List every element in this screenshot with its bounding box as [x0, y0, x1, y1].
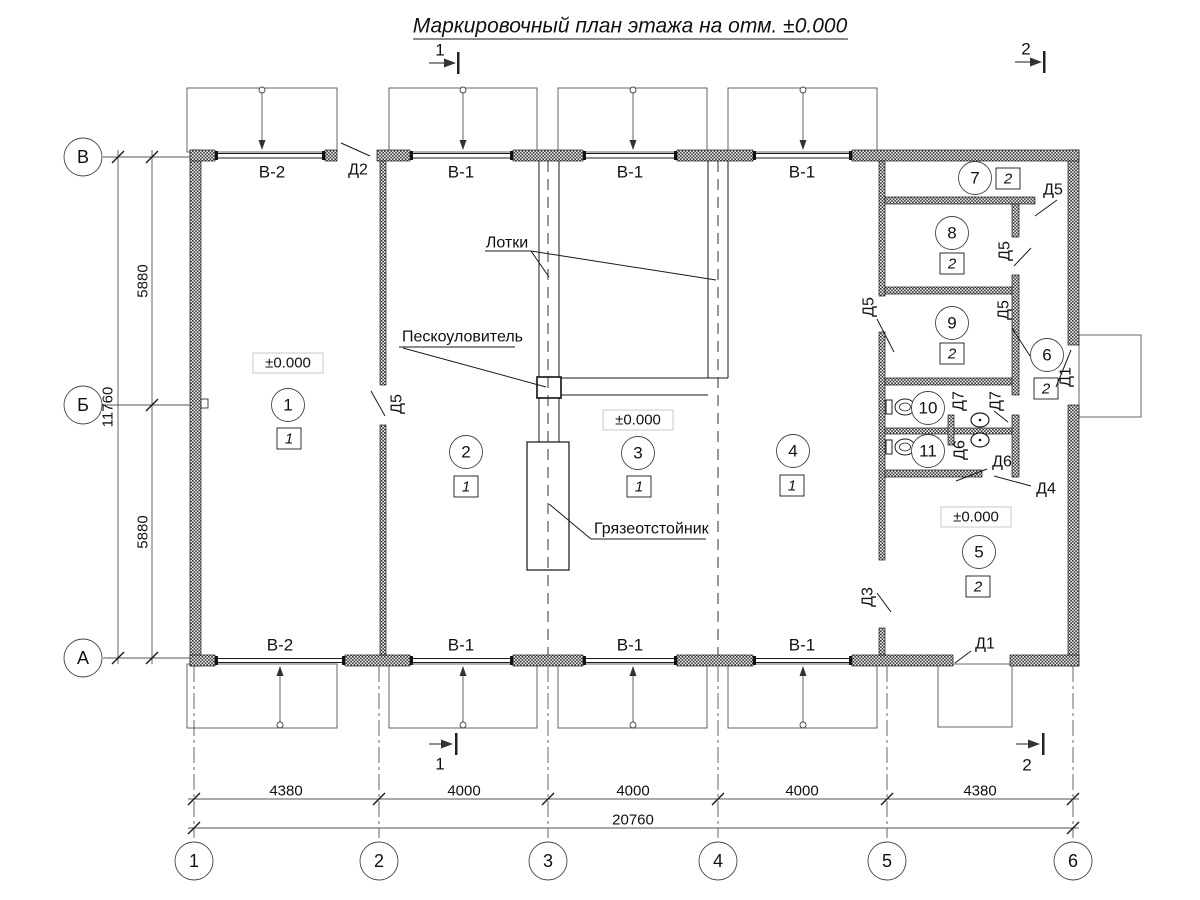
wall-room8-room9 [885, 287, 1012, 294]
elevation-room5: ±0.000 [953, 509, 999, 526]
door-label-d2: Д2 [348, 162, 368, 179]
pilaster-left [201, 399, 208, 408]
windows: В-2 В-1 В-1 В-1 В-2 В-1 В-1 В-1 [215, 151, 852, 665]
section-mark-2-top: 2 [1015, 40, 1046, 74]
page-title: Маркировочный план этажа на отм. ±0.000 [413, 15, 848, 38]
door-label-d6-right: Д6 [992, 454, 1012, 471]
section-label: 2 [1021, 40, 1030, 59]
wall-corridor-2 [1012, 275, 1019, 395]
toilet-room10 [886, 399, 915, 415]
slope-arrows-top [259, 87, 807, 150]
section-mark-2-bottom: 2 [1016, 733, 1045, 775]
section-label: 1 [435, 755, 444, 774]
room-mark-7: 7 2 [959, 162, 1021, 195]
room-category: 2 [947, 256, 957, 273]
porch-bottom-right [938, 664, 1012, 727]
window-label: В-1 [617, 163, 643, 182]
floor-plan-drawing: Маркировочный план этажа на отм. ±0.000 … [0, 0, 1200, 900]
room-mark-4: 4 1 [777, 435, 810, 497]
dim-20760: 20760 [612, 812, 654, 829]
dim-4000-1: 4000 [447, 783, 480, 800]
window-label: В-2 [267, 636, 293, 655]
wall-hall-service-1 [879, 161, 885, 296]
wall-room1-room2-upper [380, 161, 386, 385]
wall-corridor-3 [1012, 415, 1019, 477]
room-mark-9: 9 2 [936, 307, 969, 365]
room-mark-1: 1 1 [272, 389, 305, 450]
window-label: В-1 [617, 636, 643, 655]
trays-label: Лотки [486, 235, 528, 252]
room-mark-2: 2 1 [450, 436, 483, 498]
room-number: 1 [283, 396, 292, 415]
door-label-d6-left: Д6 [952, 440, 969, 460]
section-label: 2 [1022, 756, 1031, 775]
room-category: 2 [973, 579, 983, 596]
wall-left [190, 150, 201, 666]
axis-label: 6 [1068, 851, 1078, 871]
dim-5880-bottom: 5880 [135, 515, 152, 548]
window-label: В-1 [789, 636, 815, 655]
room-number: 7 [970, 169, 979, 188]
callout-sand-trap: Пескоуловитель [399, 329, 546, 388]
dim-4380-2: 4380 [963, 783, 996, 800]
drawing-title: Маркировочный план этажа на отм. ±0.000 [413, 15, 848, 40]
wall-right-lower [1068, 405, 1079, 666]
bottom-dimensions: 4380 4000 4000 4000 4380 20760 1 2 3 4 5… [175, 666, 1092, 880]
door-label-d3: Д3 [860, 587, 877, 607]
floor-plan-sheet: Маркировочный план этажа на отм. ±0.000 … [0, 0, 1200, 900]
door-label-d1-bottom: Д1 [975, 636, 995, 653]
washbasin-upper [971, 413, 989, 427]
sand-trap-box [537, 377, 561, 398]
room-mark-8: 8 2 [936, 217, 969, 275]
door-label-d5-room1: Д5 [389, 394, 406, 414]
callout-trays: Лотки [485, 235, 716, 281]
door-label-d1-room6: Д1 [1058, 367, 1075, 387]
room-mark-5: 5 2 [963, 536, 996, 598]
wall-wc-room5 [885, 470, 982, 477]
room-number: 9 [947, 314, 956, 333]
dim-4380-1: 4380 [269, 783, 302, 800]
room-number: 5 [974, 543, 983, 562]
slope-arrows-bottom [277, 666, 807, 728]
mud-settler-label: Грязеотстойник [594, 521, 710, 538]
door-label-d5-room9-left: Д5 [861, 297, 878, 317]
axis-label: А [77, 648, 89, 668]
wall-right-upper [1068, 150, 1079, 345]
section-label: 1 [435, 41, 444, 60]
apron-bottom-1 [187, 664, 337, 728]
door-label-d5-room8: Д5 [997, 241, 1014, 261]
wall-room9-wc [885, 378, 1012, 385]
room-number: 8 [947, 224, 956, 243]
door-label-d7-left: Д7 [951, 391, 968, 411]
section-mark-1-top: 1 [429, 41, 460, 75]
room-number: 3 [633, 444, 642, 463]
axis-label: 4 [713, 851, 723, 871]
porch-right [1079, 335, 1141, 417]
room-number: 6 [1042, 346, 1051, 365]
elevation-room1: ±0.000 [265, 355, 311, 372]
room-category: 2 [1003, 171, 1013, 188]
axis-label: 1 [189, 851, 199, 871]
wall-corridor-1 [1012, 204, 1019, 237]
axis-label: 2 [374, 851, 384, 871]
door-label-d7-right: Д7 [988, 391, 1005, 411]
wall-hall-service-2 [879, 332, 885, 560]
wall-hall-service-3 [879, 628, 885, 655]
axis-label: 5 [882, 851, 892, 871]
room-category: 1 [285, 431, 293, 448]
room-number: 11 [919, 442, 937, 461]
room-mark-10: 10 [912, 392, 945, 425]
room-number: 10 [919, 399, 938, 418]
room-number: 4 [788, 442, 797, 461]
callout-mud-settler: Грязеотстойник [549, 504, 710, 539]
left-dimensions: 5880 5880 11760 В Б А [64, 138, 190, 677]
axis-label: 3 [543, 851, 553, 871]
wall-room1-room2-lower [380, 425, 386, 655]
room-category: 2 [1041, 381, 1051, 398]
dim-4000-3: 4000 [785, 783, 818, 800]
room-mark-11: 11 [912, 435, 945, 468]
window-label: В-1 [789, 163, 815, 182]
dim-5880-top: 5880 [135, 264, 152, 297]
drainage-system [527, 161, 728, 655]
room-number: 2 [461, 443, 470, 462]
room-category: 1 [635, 479, 643, 496]
door-label-d5-room9-right: Д5 [996, 300, 1013, 320]
room-category: 1 [788, 478, 796, 495]
room-category: 1 [462, 479, 470, 496]
wall-room7 [885, 197, 1035, 204]
washbasin-lower [971, 433, 989, 447]
room-mark-3: 3 1 [622, 437, 655, 498]
window-label: В-1 [448, 163, 474, 182]
sand-trap-label: Пескоуловитель [402, 329, 523, 346]
door-label-d5-room7: Д5 [1043, 182, 1063, 199]
elevation-room3: ±0.000 [615, 412, 661, 429]
toilet-room11 [886, 439, 915, 455]
axis-label: Б [77, 395, 89, 415]
axis-label: В [77, 147, 89, 167]
section-mark-1-bottom: 1 [429, 733, 458, 774]
window-label: В-1 [448, 636, 474, 655]
room-category: 2 [947, 346, 957, 363]
window-label: В-2 [259, 163, 285, 182]
door-label-d4: Д4 [1036, 481, 1056, 498]
dim-4000-2: 4000 [616, 783, 649, 800]
